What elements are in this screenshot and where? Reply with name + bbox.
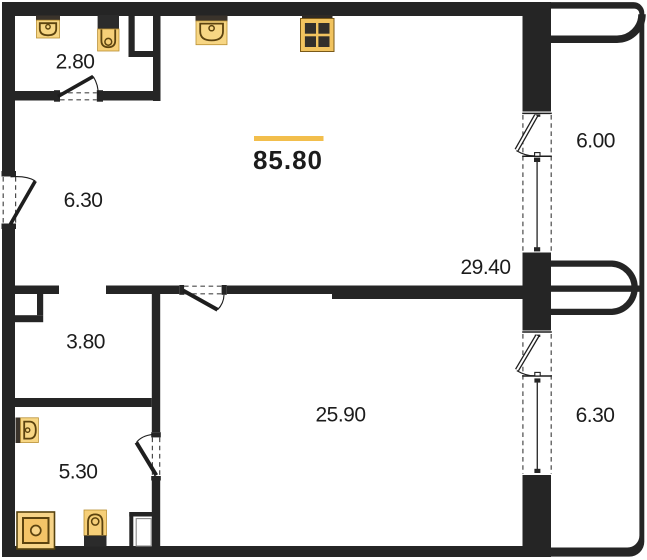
svg-text:2.80: 2.80: [56, 51, 95, 74]
svg-text:85.80: 85.80: [253, 145, 323, 175]
svg-text:29.40: 29.40: [460, 256, 510, 279]
svg-text:3.80: 3.80: [66, 331, 105, 354]
svg-text:25.90: 25.90: [315, 404, 365, 427]
svg-text:6.30: 6.30: [64, 189, 103, 212]
svg-text:6.30: 6.30: [576, 404, 615, 427]
svg-text:6.00: 6.00: [576, 130, 615, 153]
svg-text:5.30: 5.30: [59, 461, 98, 484]
